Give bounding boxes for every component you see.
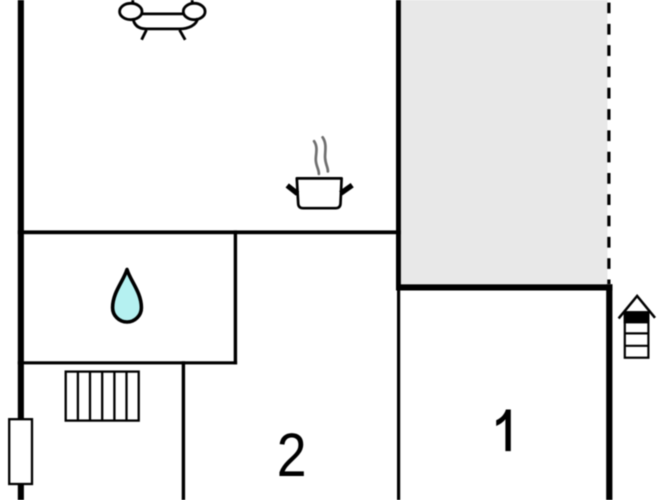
svg-text:2: 2 [277,422,307,490]
